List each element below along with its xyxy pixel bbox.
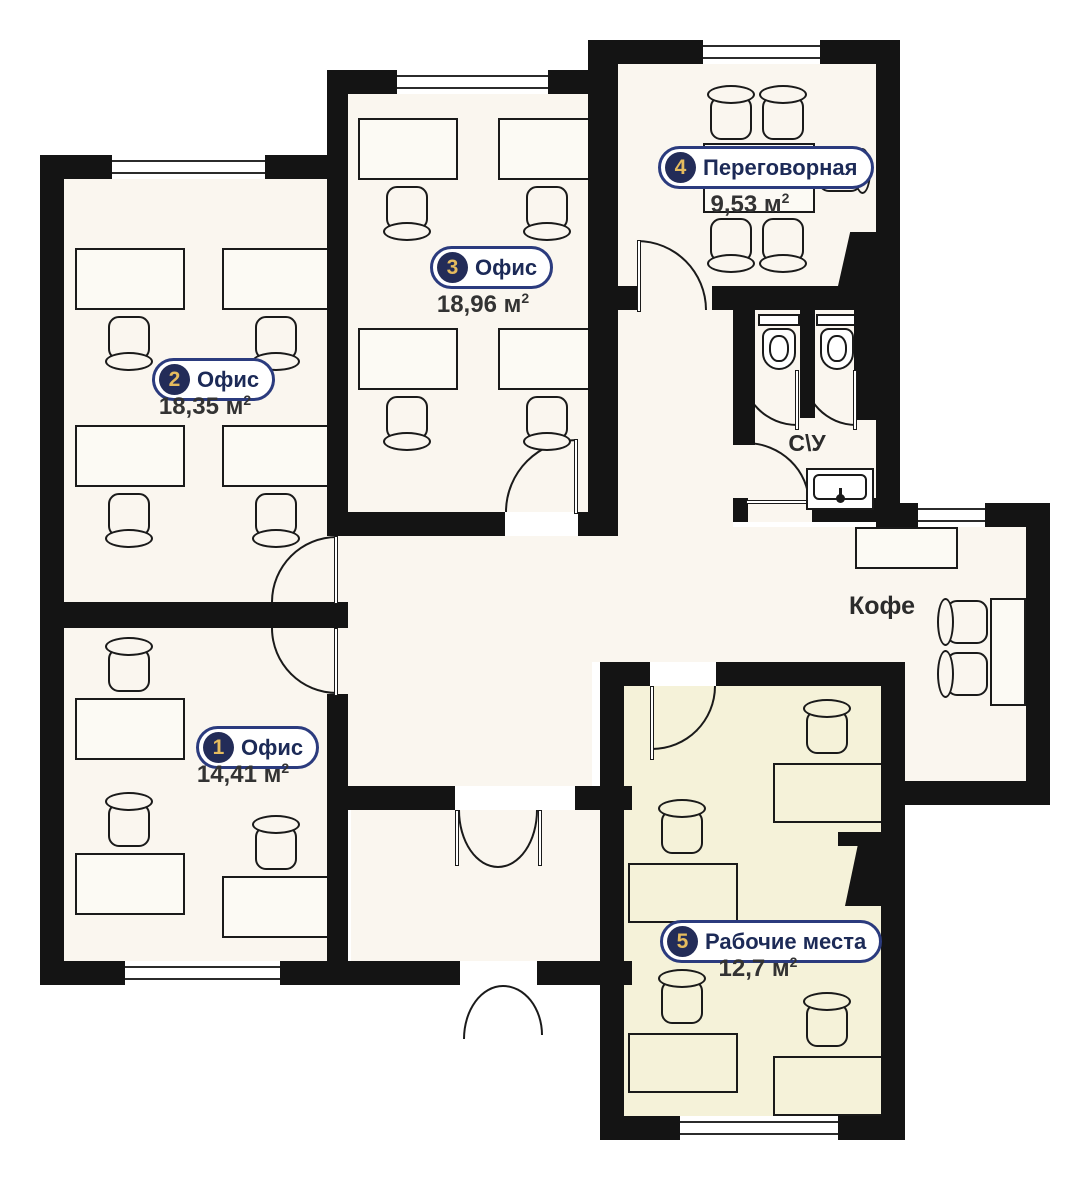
desk — [358, 118, 458, 180]
desk — [222, 248, 332, 310]
desk — [75, 425, 185, 487]
wall — [575, 786, 632, 810]
coffee-chair — [946, 652, 988, 696]
door-leaf-room2 — [334, 536, 338, 604]
wall — [578, 512, 612, 536]
wall — [881, 662, 905, 1140]
door-leaf-stall1 — [795, 370, 799, 430]
office-chair — [108, 803, 150, 847]
desk — [75, 853, 185, 915]
desk — [75, 698, 185, 760]
wall — [876, 40, 900, 527]
window-room3 — [397, 70, 548, 94]
room-number-badge: 1 — [203, 732, 234, 763]
double-door-hall-leaf-left — [455, 810, 459, 866]
toilet-tank — [758, 314, 800, 326]
room-number-badge: 3 — [437, 252, 468, 283]
entry-door-left — [463, 985, 503, 1039]
door-leaf-stall2 — [853, 370, 857, 430]
zone-label-coffee: Кофе — [822, 592, 942, 621]
toilet-bowl — [827, 335, 847, 362]
room-number-badge: 2 — [159, 364, 190, 395]
desk — [628, 863, 738, 923]
room-area-sup: 2 — [782, 190, 790, 206]
wall — [612, 286, 640, 310]
office-chair — [255, 316, 297, 360]
window-room4 — [703, 40, 820, 64]
wall — [327, 70, 348, 155]
desk — [498, 118, 598, 180]
room-area-sup: 2 — [521, 290, 529, 306]
entry-door-right — [503, 985, 543, 1035]
toilet-tank — [816, 314, 858, 326]
desk — [75, 248, 185, 310]
room-area-value: 14,41 м — [197, 761, 281, 788]
desk — [773, 763, 883, 823]
room-area-5: 12,7 м2 — [673, 954, 843, 983]
room-name: Офис — [241, 735, 303, 761]
office-chair — [386, 396, 428, 440]
window-room5 — [680, 1116, 838, 1140]
wall — [327, 512, 505, 536]
room-label-4: 4 Переговорная — [658, 146, 874, 189]
door-leaf-room1 — [334, 628, 338, 696]
room-area-2: 18,35 м2 — [120, 392, 290, 421]
room-area-sup: 2 — [790, 954, 798, 970]
double-door-hall-leaf-right — [538, 810, 542, 866]
door-leaf-bathroom — [746, 500, 810, 504]
room-area-value: 18,35 м — [159, 393, 243, 420]
room-area-4: 9,53 м2 — [665, 190, 835, 219]
room-area-sup: 2 — [243, 392, 251, 408]
wall — [327, 155, 348, 536]
wall — [716, 662, 905, 686]
desk — [222, 425, 332, 487]
meeting-chair — [762, 218, 804, 262]
desk — [222, 876, 332, 938]
wall — [854, 310, 876, 420]
room-area-value: 12,7 м — [719, 955, 790, 982]
door-leaf-room3 — [574, 439, 578, 514]
desk — [358, 328, 458, 390]
room-name: Переговорная — [703, 155, 858, 181]
wall — [895, 781, 1050, 805]
wall — [600, 662, 624, 1140]
office-chair — [661, 810, 703, 854]
office-chair — [806, 1003, 848, 1047]
office-chair — [526, 186, 568, 230]
door-leaf-room5 — [650, 686, 654, 760]
office-chair — [255, 493, 297, 537]
wall — [348, 786, 455, 810]
office-chair — [806, 710, 848, 754]
meeting-chair — [710, 96, 752, 140]
room-name: Офис — [197, 367, 259, 393]
wall — [40, 155, 64, 985]
wall — [1026, 503, 1050, 805]
meeting-chair — [762, 96, 804, 140]
room-area-3: 18,96 м2 — [398, 290, 568, 319]
desk — [498, 328, 598, 390]
room-area-1: 14,41 м2 — [158, 760, 328, 789]
desk — [773, 1056, 883, 1116]
room-area-value: 9,53 м — [711, 191, 782, 218]
door-leaf-room4 — [637, 240, 641, 312]
room-name: Офис — [475, 255, 537, 281]
room-number-badge: 4 — [665, 152, 696, 183]
toilet-bowl — [769, 335, 789, 362]
zone-label-wc: С\У — [762, 430, 852, 457]
office-chair — [108, 493, 150, 537]
coffee-chair — [946, 600, 988, 644]
office-chair — [255, 826, 297, 870]
floor-hall — [348, 536, 592, 786]
office-chair — [526, 396, 568, 440]
wall — [712, 286, 876, 310]
window-coffee — [918, 503, 985, 527]
meeting-chair — [710, 218, 752, 262]
wall — [733, 310, 755, 445]
coffee-table — [990, 598, 1026, 706]
wall — [345, 961, 460, 985]
floor-plan: 2 Офис 18,35 м2 3 Офис 18,96 м2 4 Перего… — [0, 0, 1080, 1183]
room-number-badge: 5 — [667, 926, 698, 957]
wall — [537, 961, 632, 985]
office-chair — [661, 980, 703, 1024]
window-room1 — [125, 961, 280, 985]
wall — [800, 310, 815, 418]
office-chair — [108, 316, 150, 360]
room-label-3: 3 Офис — [430, 246, 553, 289]
room-name: Рабочие места — [705, 929, 866, 955]
room-area-sup: 2 — [281, 760, 289, 776]
office-chair — [108, 648, 150, 692]
desk — [628, 1033, 738, 1093]
sink-tap-stem — [839, 488, 842, 497]
wall — [40, 602, 348, 628]
wall — [838, 832, 881, 846]
office-chair — [386, 186, 428, 230]
window-room2 — [112, 155, 265, 179]
coffee-counter — [855, 527, 958, 569]
room-area-value: 18,96 м — [437, 291, 521, 318]
wall — [327, 694, 348, 985]
